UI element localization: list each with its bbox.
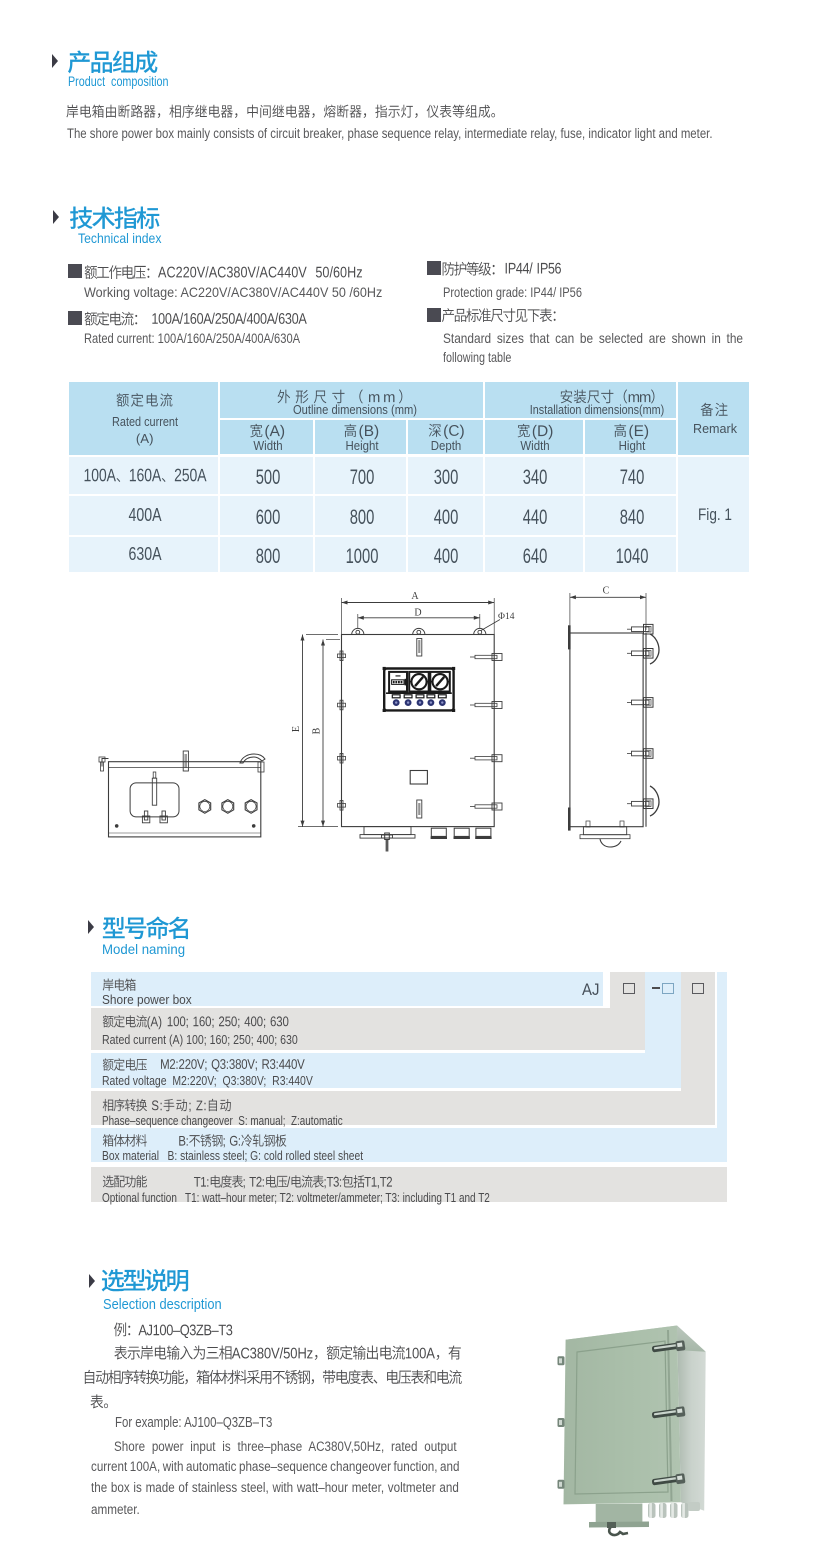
svg-text:Φ14: Φ14: [498, 612, 515, 622]
svg-text:A: A: [411, 591, 419, 602]
svg-text:C: C: [603, 586, 610, 597]
svg-text:E: E: [291, 726, 302, 732]
svg-text:D: D: [414, 608, 421, 619]
svg-text:B: B: [312, 727, 323, 734]
